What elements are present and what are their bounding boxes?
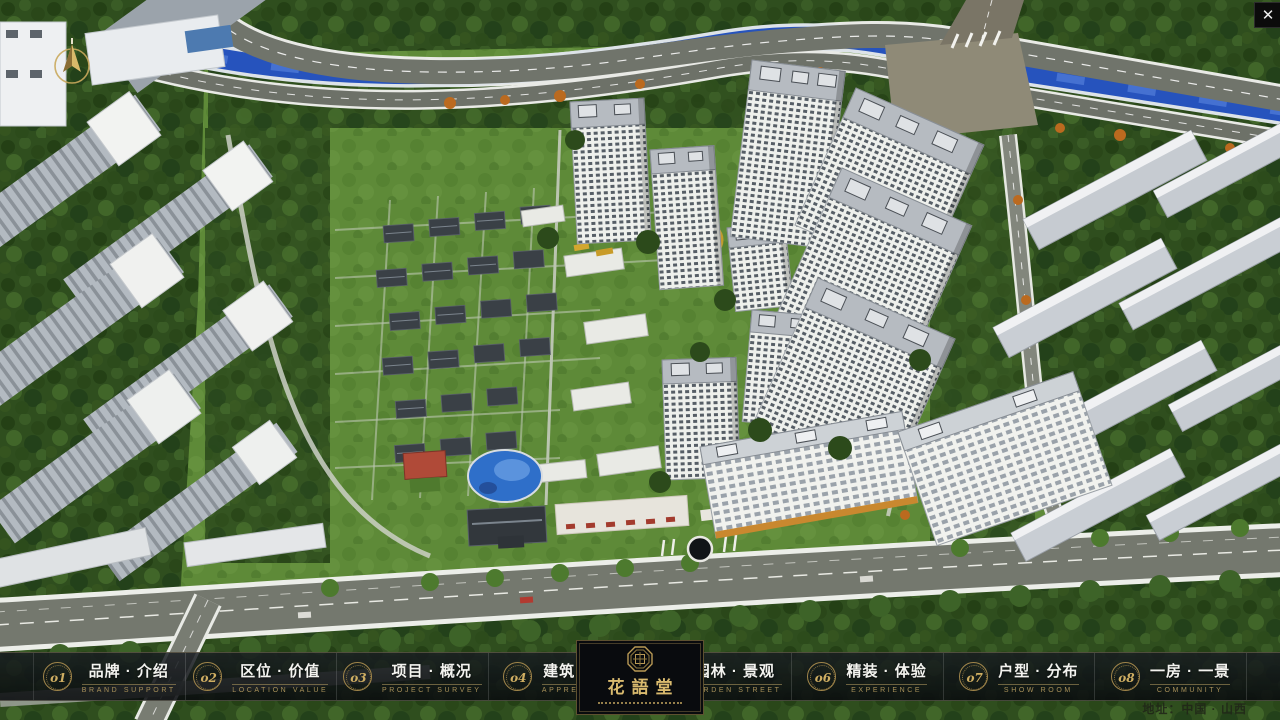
red-roof-clubhouse xyxy=(403,451,447,480)
nav-item-room-view[interactable]: o8 一房 · 一景COMMUNITY xyxy=(1095,653,1247,700)
nav-label-zh: 户型 · 分布 xyxy=(998,660,1078,681)
nav-label-zh: 区位 · 价值 xyxy=(240,660,320,681)
nav-label-en: BRAND SUPPORT xyxy=(82,684,176,694)
aerial-masterplan-view[interactable] xyxy=(0,0,1280,720)
logo-caption xyxy=(598,702,682,704)
address-text: 地址：中国 · 山西 xyxy=(1142,700,1247,717)
nav-label-zh: 品牌 · 介绍 xyxy=(89,660,169,681)
nav-number-badge: o2 xyxy=(193,662,222,691)
project-name: 花語堂 xyxy=(601,673,680,698)
nav-item-brand-intro[interactable]: o1 品牌 · 介绍BRAND SUPPORT xyxy=(33,653,186,700)
nav-label-zh: 园林 · 景观 xyxy=(695,660,775,681)
nav-label-zh: 项目 · 概况 xyxy=(392,660,472,681)
nav-item-project-survey[interactable]: o3 项目 · 概况PROJECT SURVEY xyxy=(337,653,489,700)
nav-number-badge: o8 xyxy=(1111,662,1140,691)
bottom-nav-bar: o1 品牌 · 介绍BRAND SUPPORT o2 区位 · 价值LOCATI… xyxy=(0,652,1280,701)
nav-item-floorplan-distribution[interactable]: o7 户型 · 分布SHOW ROOM xyxy=(944,653,1096,700)
nav-group-left: o1 品牌 · 介绍BRAND SUPPORT o2 区位 · 价值LOCATI… xyxy=(0,653,640,700)
nav-label-zh: 一房 · 一景 xyxy=(1150,660,1230,681)
sales-app-window: ✕ o1 品牌 · 介绍BRAND SUPPORT o2 区位 · 价值LOCA… xyxy=(0,0,1280,720)
nav-number-badge: o1 xyxy=(43,662,72,691)
nav-number-badge: o7 xyxy=(959,662,988,691)
nav-number-badge: o3 xyxy=(343,662,372,691)
nav-item-location-value[interactable]: o2 区位 · 价值LOCATION VALUE xyxy=(186,653,338,700)
entry-pavilion xyxy=(467,506,547,549)
nav-item-interior-experience[interactable]: o6 精装 · 体验EXPERIENCE xyxy=(792,653,944,700)
seal-icon xyxy=(627,646,653,672)
close-button[interactable]: ✕ xyxy=(1254,2,1280,28)
nav-label-zh: 精装 · 体验 xyxy=(846,660,926,681)
nav-label-en: PROJECT SURVEY xyxy=(382,684,482,694)
nav-label-en: SHOW ROOM xyxy=(998,684,1078,694)
nav-number-badge: o4 xyxy=(503,662,532,691)
nav-label-en: COMMUNITY xyxy=(1150,684,1230,694)
nav-label-en: EXPERIENCE xyxy=(846,684,926,694)
nav-group-right: o5 园林 · 景观GARDEN STREET o6 精装 · 体验EXPERI… xyxy=(640,653,1280,700)
nav-label-en: LOCATION VALUE xyxy=(232,684,328,694)
project-logo[interactable]: 花語堂 xyxy=(576,640,704,715)
entry-plaza xyxy=(688,537,712,561)
nav-number-badge: o6 xyxy=(807,662,836,691)
